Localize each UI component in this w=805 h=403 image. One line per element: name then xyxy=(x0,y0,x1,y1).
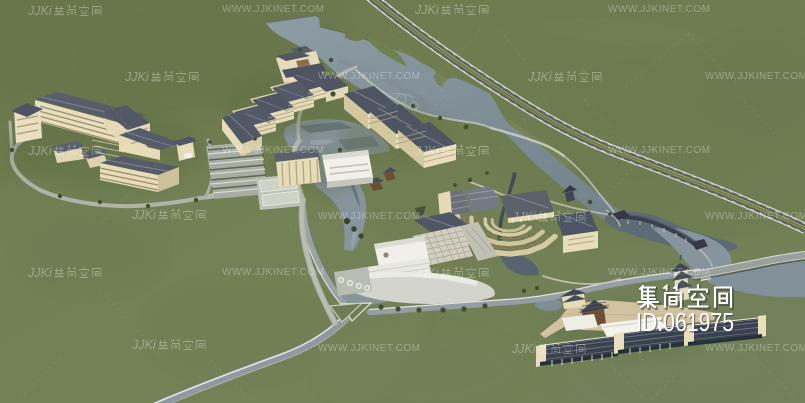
svg-text:ID:061975: ID:061975 xyxy=(636,307,734,337)
